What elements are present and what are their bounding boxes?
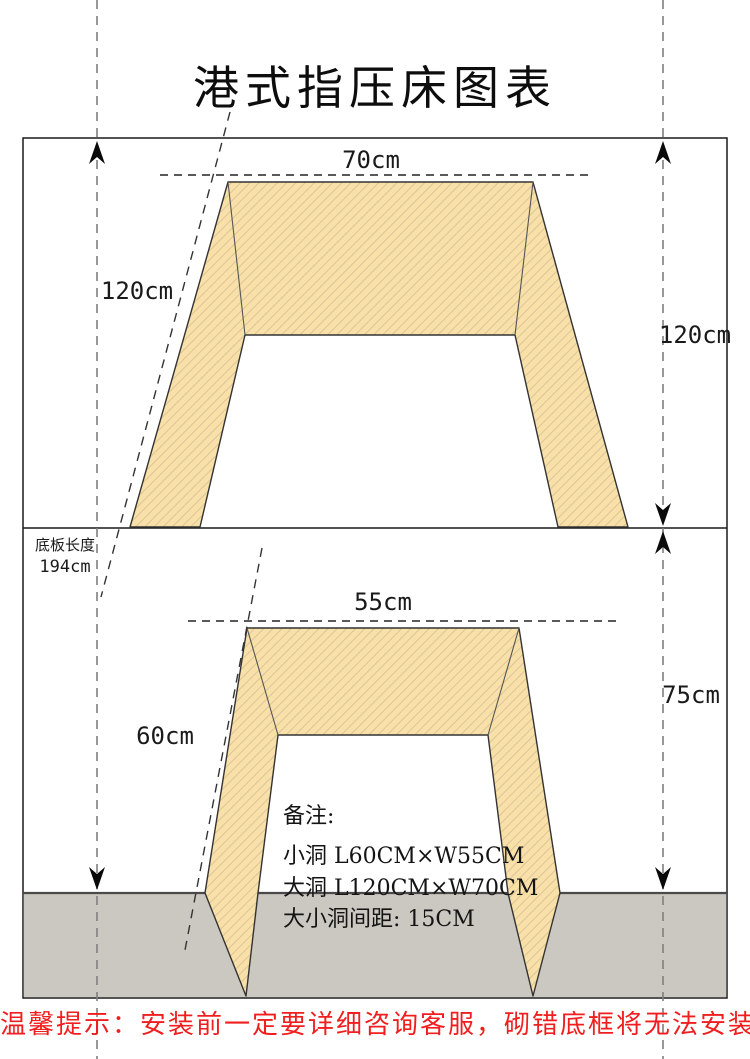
bottom-width-label: 55cm — [328, 588, 438, 616]
note-line: 大洞 L120CM×W70CM — [283, 870, 538, 902]
top-height-label-left: 120cm — [97, 277, 177, 305]
arrow-down-icon — [655, 503, 671, 526]
bottom-height-label-right: 75cm — [651, 681, 731, 709]
top-height-label-right: 120cm — [655, 321, 735, 349]
note-line: 大小洞间距: 15CM — [283, 901, 475, 933]
base-board-name-label: 底板长度 — [26, 534, 104, 555]
diagram-page: 港式指压床图表 70cm 120cm 120cm 底板长度 194cm 55cm… — [0, 0, 750, 1059]
notes-heading: 备注: — [283, 798, 334, 830]
bottom-height-label-left: 60cm — [125, 722, 205, 750]
base-board-length-label: 194cm — [28, 557, 102, 577]
warning-text: 温馨提示：安装前一定要详细咨询客服，砌错底框将无法安装 — [0, 1004, 750, 1041]
note-line: 小洞 L60CM×W55CM — [283, 838, 524, 870]
page-title: 港式指压床图表 — [0, 52, 750, 118]
top-bed-shape — [130, 182, 628, 527]
top-width-label: 70cm — [301, 146, 441, 174]
